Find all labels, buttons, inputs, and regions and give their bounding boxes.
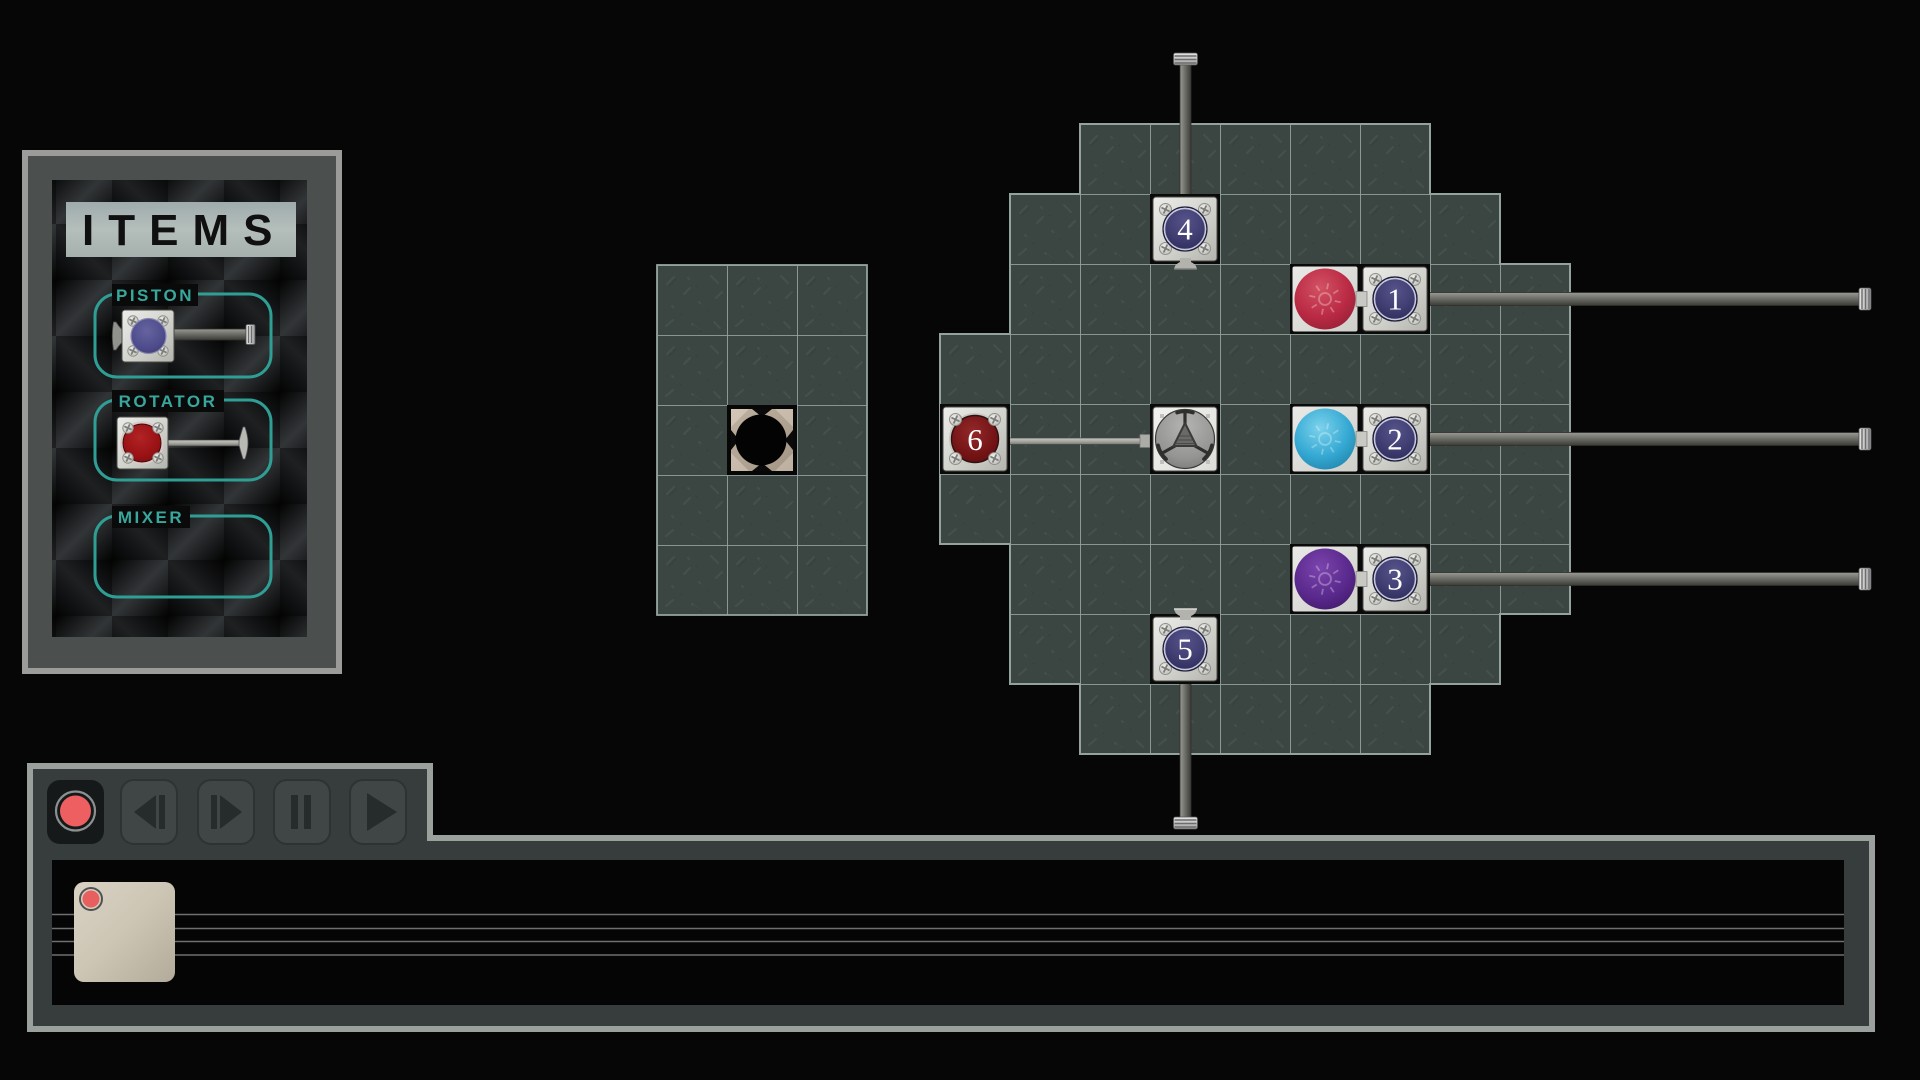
svg-text:3: 3 xyxy=(1387,562,1403,597)
svg-text:1: 1 xyxy=(1387,282,1403,317)
svg-text:MIXER: MIXER xyxy=(118,508,184,527)
svg-text:6: 6 xyxy=(967,422,983,457)
svg-text:ROTATOR: ROTATOR xyxy=(119,392,218,411)
svg-text:5: 5 xyxy=(1177,632,1193,667)
svg-text:ITEMS: ITEMS xyxy=(82,206,286,255)
svg-text:2: 2 xyxy=(1387,422,1403,457)
svg-text:PISTON: PISTON xyxy=(116,286,194,305)
svg-text:4: 4 xyxy=(1177,212,1193,247)
